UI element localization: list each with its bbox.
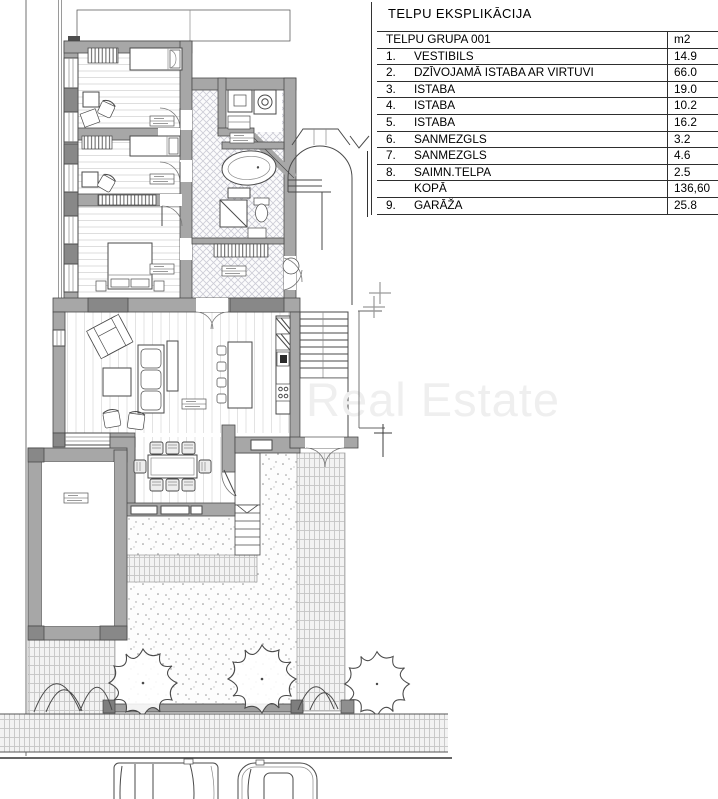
bed bbox=[130, 136, 180, 156]
nightstand bbox=[154, 281, 164, 291]
row-area: 19.0 bbox=[667, 82, 718, 98]
row-label: KOPĀ bbox=[414, 181, 667, 197]
row-area: 25.8 bbox=[667, 198, 718, 214]
room-tag bbox=[150, 116, 174, 126]
bed bbox=[130, 48, 182, 70]
group-header: TELPU GRUPA 001 bbox=[377, 32, 667, 48]
row-area: 2.5 bbox=[667, 165, 718, 181]
mirror bbox=[184, 759, 193, 764]
row-num: 4. bbox=[377, 98, 414, 114]
table-row: 5. ISTABA 16.2 bbox=[377, 115, 718, 132]
survey-marks bbox=[358, 282, 392, 457]
row-area: 10.2 bbox=[667, 98, 718, 114]
row-label: SANMEZGLS bbox=[414, 148, 667, 164]
row-num: 7. bbox=[377, 148, 414, 164]
row-label: GARĀŽA bbox=[414, 198, 667, 214]
row-area: 3.2 bbox=[667, 132, 718, 148]
row-label: ISTABA bbox=[414, 82, 667, 98]
cabinet bbox=[228, 116, 250, 129]
car-wagon bbox=[114, 759, 218, 799]
coffee-table bbox=[103, 368, 131, 396]
row-num: 2. bbox=[377, 65, 414, 81]
table-outer-line bbox=[371, 2, 372, 215]
room-tag bbox=[150, 264, 174, 274]
table-row: 1. VESTIBILS 14.9 bbox=[377, 49, 718, 66]
car-sedan bbox=[238, 760, 317, 799]
table-row: 3. ISTABA 19.0 bbox=[377, 82, 718, 99]
table-row: 2. DZĪVOJAMĀ ISTABA AR VIRTUVI 66.0 bbox=[377, 65, 718, 82]
table-row: 4. ISTABA 10.2 bbox=[377, 98, 718, 115]
row-num: 1. bbox=[377, 49, 414, 65]
unit-header: m2 bbox=[667, 32, 718, 48]
table-row: 6. SANMEZGLS 3.2 bbox=[377, 132, 718, 149]
row-num: 8. bbox=[377, 165, 414, 181]
row-area: 66.0 bbox=[667, 65, 718, 81]
row-label: ISTABA bbox=[414, 98, 667, 114]
left-path bbox=[28, 640, 115, 714]
row-num bbox=[377, 181, 414, 197]
closet bbox=[214, 244, 268, 257]
sink bbox=[228, 188, 250, 198]
shower bbox=[220, 200, 247, 227]
tree bbox=[345, 652, 410, 717]
trees bbox=[109, 645, 409, 717]
floor-plan-page: Real Estate bbox=[0, 0, 718, 799]
dining-table bbox=[148, 455, 197, 478]
row-area: 14.9 bbox=[667, 49, 718, 65]
stool bbox=[217, 394, 226, 403]
explication-title: TELPU EKSPLIKĀCIJA bbox=[388, 6, 532, 21]
stool bbox=[217, 378, 226, 387]
wardrobe bbox=[88, 48, 118, 63]
side-path bbox=[297, 453, 345, 711]
closet bbox=[98, 195, 156, 205]
row-area: 4.6 bbox=[667, 148, 718, 164]
row-label: SANMEZGLS bbox=[414, 132, 667, 148]
room-tag bbox=[222, 266, 246, 276]
explication-table: TELPU GRUPA 001 m2 1. VESTIBILS 14.9 2. … bbox=[377, 31, 718, 215]
room-tag bbox=[182, 399, 206, 409]
row-label: DZĪVOJAMĀ ISTABA AR VIRTUVI bbox=[414, 65, 667, 81]
table-row-total: KOPĀ 136,60 bbox=[377, 181, 718, 198]
room-tag bbox=[64, 493, 88, 503]
row-label: ISTABA bbox=[414, 115, 667, 131]
kitchen-island bbox=[228, 342, 252, 408]
row-label: SAIMN.TELPA bbox=[414, 165, 667, 181]
row-num: 3. bbox=[377, 82, 414, 98]
entrance-porch bbox=[288, 129, 369, 305]
row-num: 6. bbox=[377, 132, 414, 148]
wardrobe bbox=[82, 136, 112, 149]
nightstand bbox=[96, 281, 106, 291]
table-header-row: TELPU GRUPA 001 m2 bbox=[377, 32, 718, 49]
stool bbox=[217, 346, 226, 355]
double-bed bbox=[108, 243, 152, 289]
table-row: 7. SANMEZGLS 4.6 bbox=[377, 148, 718, 165]
cabinet bbox=[248, 228, 266, 238]
room-tag bbox=[230, 133, 254, 143]
console-table bbox=[167, 341, 178, 391]
desk bbox=[82, 172, 98, 187]
row-area: 136,60 bbox=[667, 181, 718, 197]
sofa bbox=[138, 345, 164, 413]
row-area: 16.2 bbox=[667, 115, 718, 131]
sidewalk bbox=[0, 714, 452, 758]
stool bbox=[217, 362, 226, 371]
row-num: 9. bbox=[377, 198, 414, 214]
table-row: 9. GARĀŽA 25.8 bbox=[377, 198, 718, 215]
garden-steps bbox=[235, 453, 260, 555]
room-tag bbox=[150, 174, 174, 184]
stove bbox=[276, 384, 290, 401]
table-row: 8. SAIMN.TELPA 2.5 bbox=[377, 165, 718, 182]
row-label: VESTIBILS bbox=[414, 49, 667, 65]
washing-machine bbox=[254, 90, 276, 114]
garden-path bbox=[127, 555, 257, 582]
mirror bbox=[256, 760, 264, 765]
table-group-bracket bbox=[367, 151, 368, 217]
garage bbox=[28, 448, 127, 640]
watermark-text: Real Estate bbox=[306, 373, 560, 426]
kitchen-counter bbox=[276, 316, 290, 414]
desk bbox=[83, 92, 99, 107]
row-num: 5. bbox=[377, 115, 414, 131]
